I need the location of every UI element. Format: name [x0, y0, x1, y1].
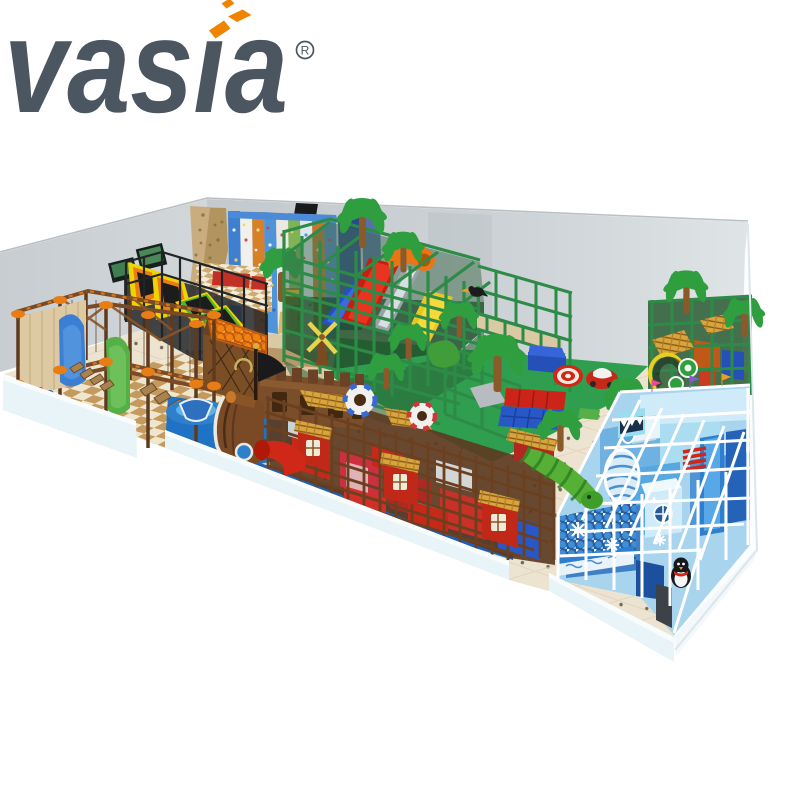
svg-text:vasıa: vasıa — [4, 0, 288, 141]
svg-text:R: R — [301, 44, 310, 58]
